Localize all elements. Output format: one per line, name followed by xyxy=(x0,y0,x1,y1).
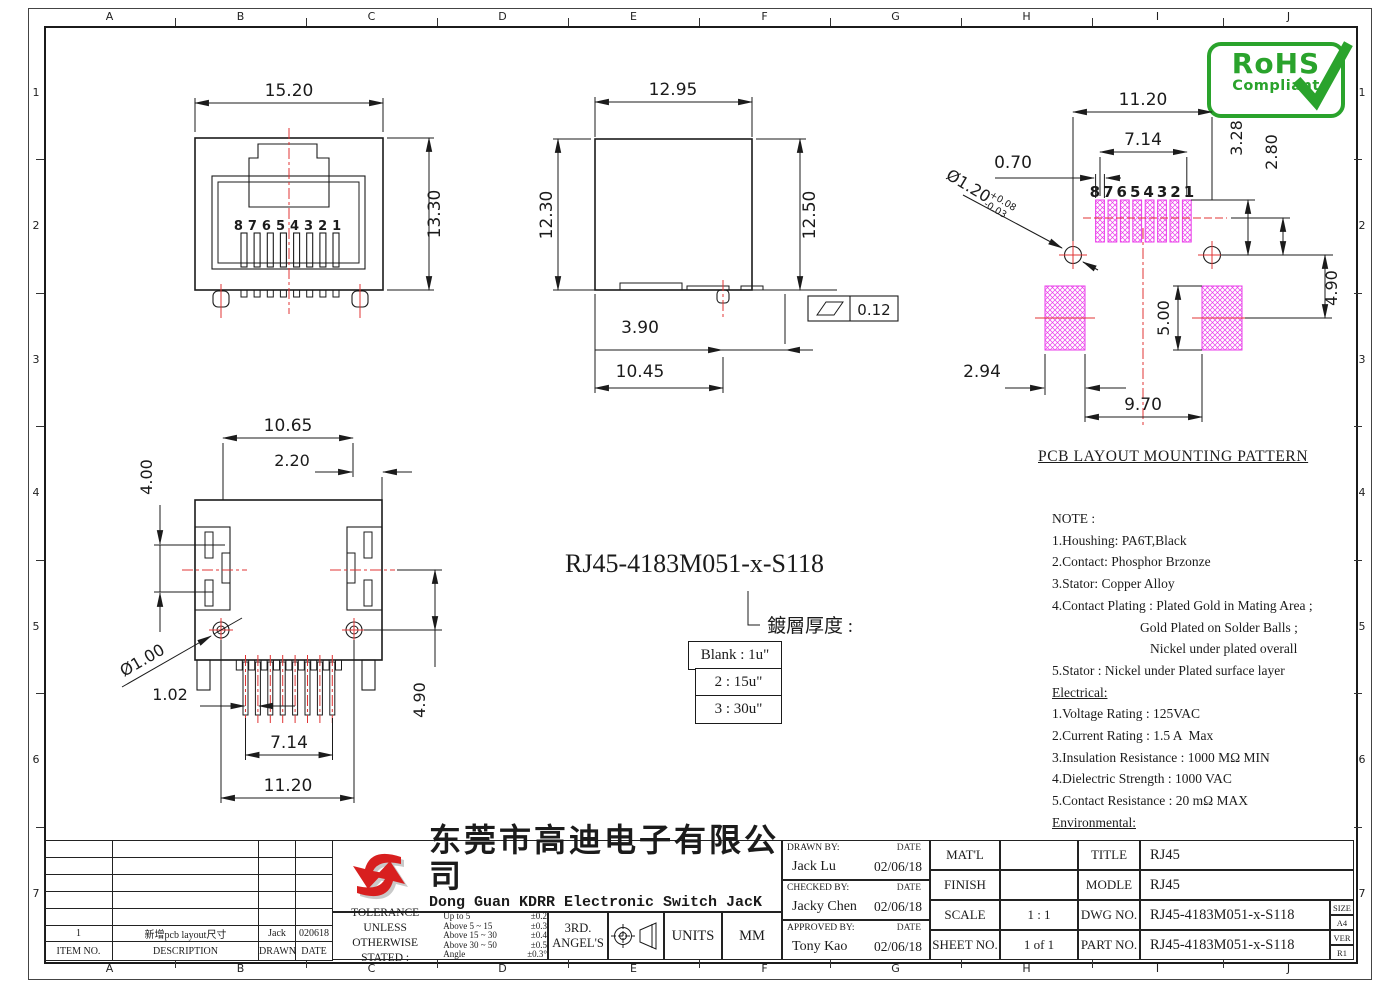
dwg-label-cell: DWG NO. xyxy=(1078,900,1140,930)
bottom-dim-offset: 4.90 xyxy=(364,570,442,718)
date-label: DATE xyxy=(897,883,921,893)
plating-option: 3 : 30u" xyxy=(695,695,782,724)
grid-row-label: 1 xyxy=(28,26,44,159)
rev-cell xyxy=(296,909,333,926)
pcb-dim-pad-w: 2.94 xyxy=(963,354,1126,422)
checked-by-label: CHECKED BY: xyxy=(787,883,849,893)
part-label-cell: PART NO. xyxy=(1078,930,1140,960)
side-dim-post-text: 3.90 xyxy=(621,318,659,338)
bottom-dim-posts-text: 11.20 xyxy=(264,776,313,796)
rev-cell xyxy=(45,909,113,926)
side-flatness-callout: 0.12 xyxy=(808,296,898,321)
revision-table: 1 新增pcb layout尺寸 Jack 020618 ITEM NO. DE… xyxy=(44,840,333,961)
company-name-cn: 东莞市高迪电子有限公司 xyxy=(429,822,781,894)
pcb-dim-pad-center-text: 2.80 xyxy=(1262,134,1281,170)
size-value-cell: A4 xyxy=(1330,915,1354,930)
grid-col-label: E xyxy=(568,960,699,978)
projection-label-2: ANGEL'S xyxy=(552,936,604,951)
title-value-cell: RJ45 xyxy=(1140,840,1354,870)
dwg-value-cell: RJ45-4183M051-x-S118 xyxy=(1140,900,1330,930)
grid-col-label: A xyxy=(44,8,175,26)
title-label-cell: TITLE xyxy=(1078,840,1140,870)
checked-by-name: Jacky Chen xyxy=(792,899,857,915)
matl-label-cell: MAT'L xyxy=(930,840,1000,870)
grid-col-label: B xyxy=(175,8,306,26)
plating-option: 2 : 15u" xyxy=(695,668,782,697)
model-label-cell: MODLE xyxy=(1078,870,1140,900)
note-section-electrical: Electrical: xyxy=(1038,682,1368,704)
flatness-symbol-icon xyxy=(817,302,843,315)
tolerance-label-1: TOLERANCE UNLESS xyxy=(333,906,437,936)
grid-col-label: C xyxy=(306,8,437,26)
note-line: 3.Stator: Copper Alloy xyxy=(1038,573,1368,595)
bottom-left-pocket xyxy=(182,527,247,610)
side-view: 12.95 12.30 12.50 3.90 xyxy=(545,75,915,415)
grid-col-label: A xyxy=(44,960,175,978)
approved-by-label: APPROVED BY: xyxy=(787,923,855,933)
tol-range: Angle xyxy=(443,950,465,959)
pcb-drill-holes xyxy=(1059,241,1333,269)
grid-col-label: G xyxy=(830,960,961,978)
front-bottom-teeth xyxy=(213,290,368,307)
drawing-sheet: A B C D E F G H I J A B C D E F G H I J … xyxy=(0,0,1398,986)
note-line: 2.Current Rating : 1.5 A Max xyxy=(1038,725,1368,747)
size-label-cell: SIZE xyxy=(1330,900,1354,915)
pcb-pad-row xyxy=(1083,200,1227,242)
grid-row-label: 3 xyxy=(28,293,44,426)
pcb-hole-dia-callout: Ø1.20 +0.08 -0.03 xyxy=(941,165,1098,270)
side-dim-height-right: 12.50 xyxy=(756,139,820,290)
front-pin-numbers: 87654321 xyxy=(234,219,346,234)
grid-col-label: I xyxy=(1092,960,1223,978)
front-dim-width-text: 15.20 xyxy=(265,81,314,101)
rev-item: 1 xyxy=(45,926,113,942)
tol-value: ±0.3° xyxy=(527,950,547,959)
grid-col-label: J xyxy=(1223,960,1354,978)
grid-col-label: I xyxy=(1092,8,1223,26)
bottom-dim-edge: 2.20 xyxy=(274,451,412,500)
pcb-dim-hole-pad-text: 4.90 xyxy=(1322,270,1341,306)
units-label-cell: UNITS xyxy=(664,912,722,960)
rev-cell xyxy=(113,858,259,875)
bottom-dim-pitch-text: 1.02 xyxy=(152,685,188,704)
side-body xyxy=(595,139,752,290)
rev-cell xyxy=(45,858,113,875)
note-line: 5.Stator : Nickel under Plated surface l… xyxy=(1038,660,1368,682)
grid-col-label: D xyxy=(437,960,568,978)
pcb-pin-numbers: 87654321 xyxy=(1090,183,1198,201)
pcb-dim-hole-pad: 4.90 xyxy=(1245,255,1341,318)
company-cell: 东莞市高迪电子有限公司 Dong Guan KDRR Electronic Sw… xyxy=(332,840,782,912)
part-number-callout: RJ45-4183M051-x-S118 鍍層厚度 : Blank : 1u" … xyxy=(555,545,890,740)
rev-header-item: ITEM NO. xyxy=(45,942,113,961)
drawn-by-name: Jack Lu xyxy=(792,859,836,875)
tolerance-cell: TOLERANCE UNLESS OTHERWISE STATED : Up t… xyxy=(332,912,548,960)
bottom-pin-tails xyxy=(243,655,335,723)
date-label: DATE xyxy=(897,843,921,853)
side-dim-overall-text: 10.45 xyxy=(616,362,665,382)
grid-col-label: B xyxy=(175,960,306,978)
rev-drawn: Jack xyxy=(259,926,296,942)
pcb-layout-view: 11.20 7.14 0.70 87654321 xyxy=(935,70,1365,430)
side-dim-width: 12.95 xyxy=(595,80,752,137)
bottom-dim-width-text: 10.65 xyxy=(264,416,313,436)
notes-panel: PCB LAYOUT MOUNTING PATTERN NOTE : 1.Hou… xyxy=(1038,448,1368,855)
approved-by-name: Tony Kao xyxy=(792,939,847,955)
side-base-features xyxy=(555,280,837,344)
rev-cell xyxy=(259,909,296,926)
part-value-cell: RJ45-4183M051-x-S118 xyxy=(1140,930,1330,960)
sheet-label-cell: SHEET NO. xyxy=(930,930,1000,960)
bottom-dim-latch-text: 4.00 xyxy=(137,459,156,495)
bottom-dim-edge-text: 2.20 xyxy=(274,451,310,470)
front-dim-height: 13.30 xyxy=(387,138,445,290)
front-dim-width: 15.20 xyxy=(195,81,383,132)
rev-date: 020618 xyxy=(296,926,333,942)
rev-cell xyxy=(296,858,333,875)
grid-row-label: 6 xyxy=(28,693,44,826)
pcb-dim-pad-top: 3.28 xyxy=(1191,120,1255,255)
pcb-dim-pad-height-text: 5.00 xyxy=(1154,300,1173,336)
bottom-comb xyxy=(197,660,375,690)
grid-col-label: G xyxy=(830,8,961,26)
bottom-posts xyxy=(209,618,366,642)
plating-label: 鍍層厚度 : xyxy=(767,611,853,638)
grid-row-label: 5 xyxy=(28,560,44,693)
rev-cell xyxy=(296,875,333,892)
drawn-by-cell: DRAWN BY: DATE Jack Lu 02/06/18 xyxy=(782,840,930,880)
grid-col-label: D xyxy=(437,8,568,26)
third-angle-projection-icon xyxy=(610,914,662,958)
rev-cell xyxy=(45,892,113,909)
ver-value-cell: R1 xyxy=(1330,945,1354,960)
rev-cell xyxy=(113,909,259,926)
bottom-post-dia-text: Ø1.00 xyxy=(117,640,168,681)
rev-cell xyxy=(296,892,333,909)
bottom-dim-posts: 11.20 xyxy=(221,640,354,803)
side-dim-height-left-text: 12.30 xyxy=(537,191,557,240)
front-view: 15.20 87654321 xyxy=(140,70,485,335)
grid-col-label: F xyxy=(699,960,830,978)
grid-col-label: J xyxy=(1223,8,1354,26)
bottom-right-pocket xyxy=(330,527,395,610)
pcb-dim-pad-span-text: 9.70 xyxy=(1124,395,1162,415)
side-dim-height-left: 12.30 xyxy=(537,139,591,290)
rev-header-description: DESCRIPTION xyxy=(113,942,259,961)
pcb-dim-pad-w-text: 2.94 xyxy=(963,362,1001,382)
rev-header-date: DATE xyxy=(296,942,333,961)
front-dim-height-text: 13.30 xyxy=(425,190,445,239)
note-line: 4.Dielectric Strength : 1000 VAC xyxy=(1038,768,1368,790)
pcb-dim-pad-width-text: 0.70 xyxy=(994,153,1032,173)
company-logo-icon xyxy=(341,845,419,907)
side-flatness-value: 0.12 xyxy=(857,301,890,319)
rev-cell xyxy=(113,892,259,909)
rev-description: 新增pcb layout尺寸 xyxy=(113,926,259,942)
side-dim-width-text: 12.95 xyxy=(649,80,698,100)
drawn-by-label: DRAWN BY: xyxy=(787,843,839,853)
plating-option: Blank : 1u" xyxy=(688,641,782,670)
grid-col-label: F xyxy=(699,8,830,26)
bottom-dim-row: 7.14 xyxy=(246,718,333,760)
grid-row-label: 2 xyxy=(28,159,44,292)
grid-col-label: H xyxy=(961,8,1092,26)
drawn-date: 02/06/18 xyxy=(874,859,922,875)
bottom-dim-row-text: 7.14 xyxy=(270,733,308,753)
rev-cell xyxy=(259,841,296,858)
grid-col-label: H xyxy=(961,960,1092,978)
rev-cell xyxy=(113,841,259,858)
rev-cell xyxy=(45,875,113,892)
bottom-dim-pitch: 1.02 xyxy=(152,685,295,706)
ver-label-cell: VER xyxy=(1330,930,1354,945)
front-pin-contacts: 87654321 xyxy=(234,219,346,267)
rev-cell xyxy=(113,875,259,892)
title-block: 1 新增pcb layout尺寸 Jack 020618 ITEM NO. DE… xyxy=(44,840,1354,960)
rev-cell xyxy=(296,841,333,858)
grid-row-label: 7 xyxy=(28,827,44,960)
side-dim-post: 3.90 xyxy=(595,318,813,350)
note-line: Nickel under plated overall xyxy=(1038,638,1368,660)
units-value-cell: MM xyxy=(722,912,782,960)
finish-value-cell xyxy=(1000,870,1078,900)
note-line: Gold Plated on Solder Balls ; xyxy=(1038,617,1368,639)
note-section-environmental: Environmental: xyxy=(1038,812,1368,834)
projection-label-1: 3RD. xyxy=(565,921,592,936)
pcb-dim-span-text: 11.20 xyxy=(1119,90,1168,110)
side-dim-overall: 10.45 xyxy=(595,294,723,393)
scale-value-cell: 1 : 1 xyxy=(1000,900,1078,930)
approved-date: 02/06/18 xyxy=(874,939,922,955)
grid-col-label: E xyxy=(568,8,699,26)
rev-cell xyxy=(259,875,296,892)
bottom-post-dia-callout: Ø1.00 xyxy=(117,618,243,687)
projection-cell: 3RD. ANGEL'S xyxy=(548,912,608,960)
tolerance-label-2: OTHERWISE STATED : xyxy=(333,936,437,966)
notes-heading: PCB LAYOUT MOUNTING PATTERN xyxy=(1038,448,1368,466)
checked-date: 02/06/18 xyxy=(874,899,922,915)
finish-label-cell: FINISH xyxy=(930,870,1000,900)
projection-symbol-cell xyxy=(608,912,664,960)
rev-cell xyxy=(259,858,296,875)
note-line: 4.Contact Plating : Plated Gold in Matin… xyxy=(1038,595,1368,617)
rev-cell xyxy=(259,892,296,909)
date-label: DATE xyxy=(897,923,921,933)
model-value-cell: RJ45 xyxy=(1140,870,1354,900)
sheet-value-cell: 1 of 1 xyxy=(1000,930,1078,960)
matl-value-cell xyxy=(1000,840,1078,870)
scale-label-cell: SCALE xyxy=(930,900,1000,930)
pcb-dim-row-text: 7.14 xyxy=(1124,130,1162,150)
bottom-dim-offset-text: 4.90 xyxy=(410,682,429,718)
grid-row-label: 4 xyxy=(28,426,44,559)
bottom-view: 10.65 2.20 4.00 xyxy=(110,415,505,815)
note-line: 5.Contact Resistance : 20 mΩ MAX xyxy=(1038,790,1368,812)
rev-cell xyxy=(45,841,113,858)
rev-header-drawn: DRAWN xyxy=(259,942,296,961)
note-line: 1.Voltage Rating : 125VAC xyxy=(1038,703,1368,725)
side-dim-height-right-text: 12.50 xyxy=(800,191,820,240)
pcb-dim-pad-top-text: 3.28 xyxy=(1227,120,1246,156)
note-line: 1.Houshing: PA6T,Black xyxy=(1038,530,1368,552)
note-line: NOTE : xyxy=(1038,508,1368,530)
checked-by-cell: CHECKED BY: DATE Jacky Chen 02/06/18 xyxy=(782,880,930,920)
note-line: 2.Contact: Phosphor Brzonze xyxy=(1038,551,1368,573)
approved-by-cell: APPROVED BY: DATE Tony Kao 02/06/18 xyxy=(782,920,930,960)
note-line: 3.Insulation Resistance : 1000 MΩ MIN xyxy=(1038,747,1368,769)
